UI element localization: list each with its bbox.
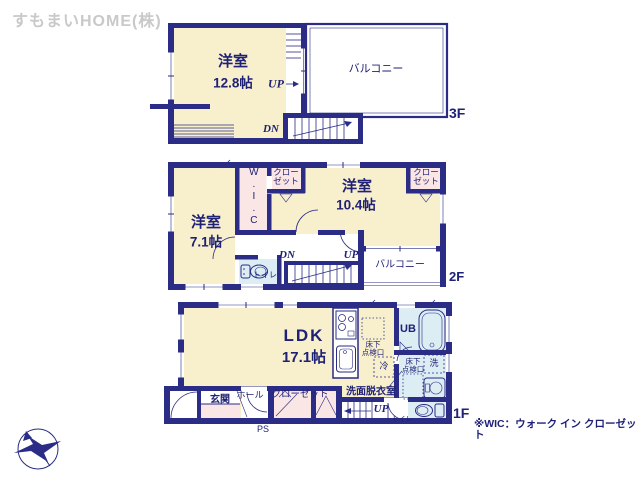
floor-hatch-label-kitchen: 床下 点検口 [362,341,385,357]
room-size-2f-west: 7.1帖 [190,236,222,251]
ps-label: PS [257,425,269,435]
floor-3-plan [150,23,447,144]
staircase-2f [284,261,362,287]
floor-label-3f: 3F [449,106,465,121]
up-label-1f: UP [374,404,389,416]
north-compass-icon [14,429,61,469]
room-size-2f-east: 10.4帖 [336,199,376,214]
wic-label-2f: W.I.C [248,167,259,227]
closet-label-1f: クローゼット [271,390,328,400]
floor-label-1f: 1F [453,406,469,421]
unit-bath-label: UB [400,324,416,336]
up-label-3f: UP [268,78,284,91]
hall-label: ホール [236,391,263,401]
washroom-label: 洗面脱衣室 [346,388,396,399]
fridge-label: 冷 [379,362,388,372]
balcony-label-3f: バルコニー [349,64,404,76]
floor-hatch-label-washroom: 床下 点検口 [402,358,425,374]
dn-label-2f: DN [279,250,295,262]
room-label-3f-yoshitsu: 洋室 [218,54,248,70]
wic-note: ※WIC：ウォーク イン クローゼット [474,419,640,442]
floor-plan-page: すもまいHOME(株) 洋室 12.8帖 バルコニー UP DN 3F クロー … [0,0,640,480]
toilet-label-2f: トイレ [253,272,277,281]
floor-plan-canvas [0,0,640,480]
kitchen-counter [333,308,358,378]
ldk-label: LDK [284,327,325,345]
staircase-3f [283,113,363,144]
balcony-label-2f: バルコニー [375,261,425,272]
washer-label: 洗 [429,359,438,369]
toilet-icon-1f [408,402,446,418]
closet-label-2f-west: クロー ゼット [273,168,299,186]
ldk-size: 17.1帖 [282,350,326,366]
toilet-label-1f: トイレ [392,416,413,424]
room-label-2f-west: 洋室 [191,215,221,231]
floor-label-2f: 2F [449,270,464,284]
room-size-3f-yoshitsu: 12.8帖 [213,77,253,92]
watermark-text: すもまいHOME(株) [12,13,162,30]
closet-label-2f-east: クロー ゼット [413,168,439,186]
room-label-2f-east: 洋室 [342,179,372,195]
entrance-label: 玄関 [210,396,230,407]
up-label-2f: UP [344,250,359,262]
dn-label-3f: DN [263,124,279,136]
